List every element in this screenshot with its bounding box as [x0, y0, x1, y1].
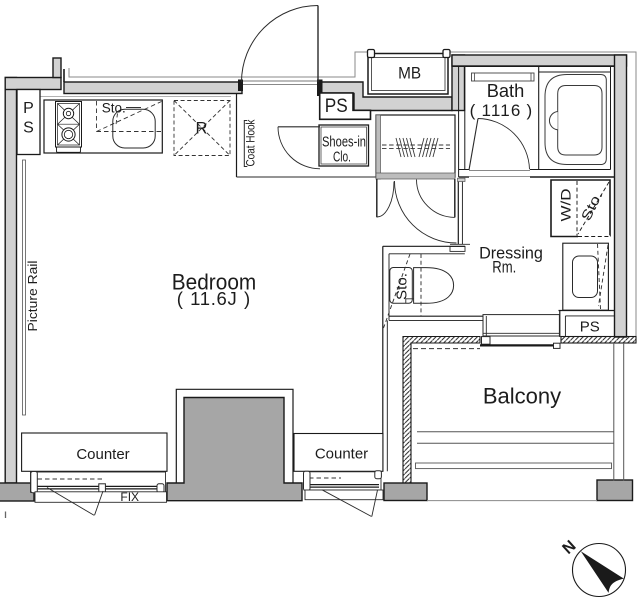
- svg-text:Clo.: Clo.: [333, 150, 351, 166]
- svg-text:P: P: [23, 100, 34, 117]
- svg-text:Counter: Counter: [76, 446, 129, 463]
- svg-text:Sto.: Sto.: [394, 273, 411, 300]
- svg-text:PS: PS: [580, 319, 600, 336]
- svg-text:Bath: Bath: [487, 80, 525, 101]
- svg-text:R: R: [196, 120, 208, 138]
- svg-text:S: S: [23, 120, 34, 137]
- svg-text:Picture Rail: Picture Rail: [25, 260, 40, 331]
- svg-text:Sto.: Sto.: [102, 101, 126, 116]
- svg-text:Coat Hook: Coat Hook: [246, 119, 258, 166]
- svg-text:MB: MB: [398, 64, 421, 83]
- svg-text:Balcony: Balcony: [483, 383, 561, 408]
- svg-text:FIX: FIX: [120, 490, 139, 504]
- svg-text:Rm.: Rm.: [492, 259, 516, 277]
- svg-text:Shoes-in: Shoes-in: [322, 134, 366, 150]
- svg-text:W/D: W/D: [558, 189, 574, 222]
- svg-text:Counter: Counter: [315, 446, 368, 463]
- svg-text:PS: PS: [325, 96, 348, 117]
